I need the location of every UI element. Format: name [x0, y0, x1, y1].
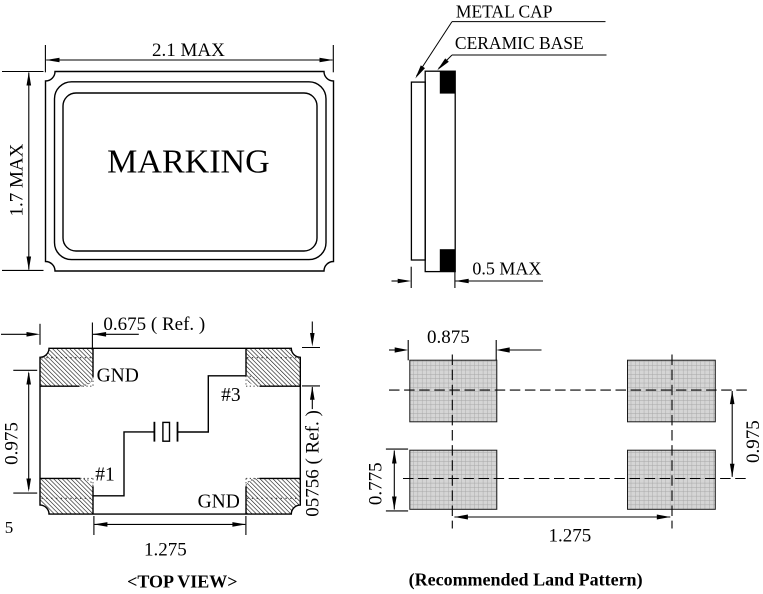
svg-text:METAL CAP: METAL CAP	[456, 2, 553, 22]
svg-text:0.875: 0.875	[427, 327, 470, 348]
svg-text:<TOP VIEW>: <TOP VIEW>	[127, 572, 237, 592]
svg-text:1.275: 1.275	[549, 526, 592, 547]
svg-text:0.5 MAX: 0.5 MAX	[472, 259, 541, 279]
svg-text:2.1 MAX: 2.1 MAX	[152, 40, 225, 61]
svg-text:0.775: 0.775	[365, 462, 386, 505]
svg-text:1.275: 1.275	[144, 539, 187, 560]
svg-text:0.675 ( Ref. ): 0.675 ( Ref. )	[103, 314, 205, 335]
svg-text:#1: #1	[95, 464, 115, 485]
svg-text:5: 5	[5, 518, 14, 537]
svg-text:MARKING: MARKING	[107, 143, 269, 180]
svg-text:CERAMIC BASE: CERAMIC BASE	[455, 33, 584, 53]
svg-text:#3: #3	[221, 385, 241, 406]
svg-text:1.7 MAX: 1.7 MAX	[7, 143, 28, 216]
svg-text:05756 ( Ref. ): 05756 ( Ref. )	[303, 410, 324, 517]
svg-text:(Recommended Land Pattern): (Recommended Land Pattern)	[409, 570, 643, 591]
svg-text:GND: GND	[198, 491, 240, 512]
svg-text:GND: GND	[97, 366, 139, 387]
svg-text:0.975: 0.975	[1, 422, 22, 465]
svg-text:0.975: 0.975	[743, 420, 763, 463]
